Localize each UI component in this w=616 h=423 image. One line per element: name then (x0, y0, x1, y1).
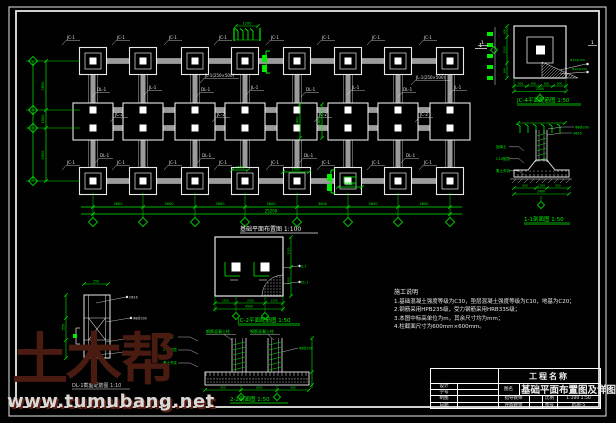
dim-text: 3600 (164, 202, 174, 206)
dim-text: 3600 (113, 202, 123, 206)
dim-text: 600 (518, 82, 524, 86)
column-mark (192, 178, 199, 185)
callout-label: JC-2 (114, 112, 123, 117)
callout-label: JC-1 (371, 35, 380, 40)
column-mark (447, 125, 454, 132)
material-label: 钢筋混凝土柱 (250, 328, 274, 334)
callout-label: DL-1 (100, 153, 110, 158)
beam-callout-label: JL-1(250×500) (415, 75, 446, 80)
dim-text: 600 (555, 184, 561, 188)
dim-text: 1200 (287, 247, 291, 254)
rebar-hatch (269, 362, 281, 365)
section-marker: 1 (591, 40, 594, 46)
leader-dot (126, 296, 128, 298)
ground-hatch (518, 179, 522, 183)
dim-text: 3600 (266, 202, 276, 206)
rebar-hatch (233, 362, 245, 365)
callout-label: DL-1 (306, 87, 316, 92)
rebar-mark (487, 54, 493, 58)
rebar-label: Φ12@150 (572, 67, 587, 71)
axis-diamond (538, 202, 545, 209)
rebar-mark (327, 174, 332, 181)
footing-hatch (206, 379, 309, 385)
dim-text: 600 (557, 82, 563, 86)
dim-text: 1200 (222, 299, 229, 303)
dim-text: 3600 (41, 81, 45, 91)
callout-leader (95, 159, 99, 164)
column-mark (447, 58, 454, 65)
callout-leader (367, 41, 371, 46)
dim-text: 3600 (215, 202, 225, 206)
dim-text: 600 (544, 82, 550, 86)
note-item: 2.钢筋采用HPB235级，受力钢筋采用HRB335级； (394, 306, 584, 314)
drawing-name: 基础平面布置图及详图 (521, 382, 616, 395)
callout-leader (401, 159, 405, 164)
footing-hatch (206, 373, 309, 379)
dim-text: 1800 (255, 386, 262, 390)
callout-leader (214, 41, 218, 46)
callout-label: JC-2 (216, 112, 225, 117)
detail-title: 1-1剖面图 1:50 (524, 215, 564, 223)
column-mark (242, 58, 249, 65)
callout-leader (282, 348, 298, 352)
callout-leader (411, 81, 415, 86)
dim-text: 4500 (245, 305, 253, 309)
ground-hatch (536, 179, 540, 183)
jc2-column-mark (261, 263, 270, 272)
column-mark (345, 58, 352, 65)
callout-label: JL-1 (250, 85, 259, 90)
callout-leader (200, 79, 204, 84)
callout-label: JC-1 (66, 35, 75, 40)
column-mark (395, 58, 402, 65)
sheet-number-label: 图号 (542, 402, 557, 409)
construction-notes: 施工说明 1.基础混凝土强度等级为C30，垫层混凝土强度等级为C10，地基为C2… (394, 288, 584, 331)
jc4-column-mark (536, 46, 545, 55)
rebar-hook (250, 29, 253, 32)
title-block-line (529, 395, 530, 408)
callout-leader (268, 335, 274, 341)
callout-label: JL-1 (351, 85, 360, 90)
leader-dot (586, 63, 589, 66)
ground-hatch (524, 179, 528, 183)
cad-drawing-sheet: 3600150039003600360036003600360036003600… (0, 0, 616, 423)
callout-label: DL-1 (406, 153, 416, 158)
watermark-url: www.tumubang.net (7, 391, 215, 412)
rebar-hook (549, 124, 552, 126)
column-mark (140, 178, 147, 185)
dim-text: 1200 (270, 299, 277, 303)
callout-label: JC-1 (116, 160, 125, 165)
dim-text: 3600 (318, 202, 328, 206)
callout-label: JC-2 (419, 112, 428, 117)
rebar-label: Φ8@200 (299, 347, 313, 351)
dim-text: 900 (290, 386, 296, 390)
dim-text: 1500 (235, 166, 245, 170)
rebar-hatch (269, 342, 281, 345)
rebar-hatch (537, 143, 546, 146)
dim-text: 2100 (247, 299, 254, 303)
rebar-label: JL-1 (300, 265, 307, 269)
dim-text: 25200 (265, 209, 278, 214)
dim-text: 3600 (419, 202, 429, 206)
rebar-mark (487, 76, 493, 80)
rebar-hatch (233, 347, 245, 350)
reviewer-label: 评阅教师 (498, 402, 529, 409)
ground-hatch (548, 179, 552, 183)
dim-text: 600 (531, 82, 537, 86)
callout-leader (367, 166, 371, 171)
dim-text: 250 (93, 280, 99, 284)
callout-label: JC-1 (321, 35, 330, 40)
column-mark (345, 125, 352, 132)
rebar-hook (525, 124, 528, 126)
callout-leader (519, 159, 524, 163)
column-mark (294, 178, 301, 185)
axis-diamond (446, 218, 455, 227)
rebar-mark (487, 32, 493, 36)
ground-hatch (566, 179, 570, 183)
sheet-number-value: 结施-5 (557, 402, 600, 409)
callout-label: JC-2 (318, 112, 327, 117)
column-mark (90, 125, 97, 132)
callout-leader (190, 337, 198, 341)
rebar-hatch (233, 367, 245, 370)
note-item: 3.本图中标高单位为m，其余尺寸均为mm； (394, 315, 584, 323)
dim-text: 1500 (41, 114, 45, 124)
callout-label: JC-1 (218, 35, 227, 40)
rebar-hatch (233, 342, 245, 345)
callout-label: JC-1 (168, 160, 177, 165)
rebar-hatch (269, 367, 281, 370)
callout-label: DL-1 (304, 153, 314, 158)
callout-leader (96, 297, 126, 303)
axis-diamond (191, 218, 200, 227)
callout-leader (519, 147, 524, 151)
column-mark (447, 107, 454, 114)
column-mark (294, 107, 301, 114)
callout-label: JC-1 (270, 35, 279, 40)
dim-text: 2400 (296, 116, 300, 126)
callout-label: JC-1 (116, 35, 125, 40)
callout-label: JL-1 (453, 85, 462, 90)
column-mark (192, 107, 199, 114)
axis-diamond (139, 218, 148, 227)
detail-title: JC-4平面配筋图 1:50 (516, 96, 570, 104)
callout-leader (317, 41, 321, 46)
rebar-label: Φ8@200 (575, 126, 589, 130)
rebar-hook (517, 124, 520, 126)
callout-label: DL-1 (202, 153, 212, 158)
dim-text: 1200 (503, 46, 507, 53)
column-mark (90, 178, 97, 185)
leader-dot (586, 71, 589, 74)
callout-leader (112, 41, 116, 46)
watermark-brand: 土木帮 (12, 333, 174, 389)
rebar-hook (235, 29, 238, 32)
rebar-label: 2Φ16 (129, 296, 138, 300)
rebar-hatch (537, 158, 546, 161)
rebar-hatch (537, 138, 546, 141)
axis-diamond (491, 47, 498, 54)
dim-text: 1200 (243, 22, 252, 26)
rebar-mark (262, 65, 267, 72)
callout-label: DL-1 (97, 87, 107, 92)
title-block-line (457, 383, 458, 408)
column-mark (447, 178, 454, 185)
rebar-hatch (269, 357, 281, 360)
callout-leader (164, 166, 168, 171)
dim-text: 3900 (41, 150, 45, 160)
detail-title: JC-2平面配筋图 1:50 (237, 316, 291, 324)
beam-callout-label: JL-1(250×500) (204, 73, 235, 78)
drawing-name-label: 图名 (498, 383, 519, 395)
column-mark (242, 178, 249, 185)
column-mark (395, 125, 402, 132)
column-mark (395, 178, 402, 185)
axis-diamond (394, 218, 403, 227)
material-label: 钢筋混凝土柱 (206, 328, 230, 334)
rebar-hook (557, 124, 560, 126)
rebar-mark (487, 65, 493, 69)
callout-leader (224, 335, 232, 341)
leader-dot (130, 317, 132, 319)
column-mark (192, 125, 199, 132)
rebar-hatch (537, 148, 546, 151)
callout-label: JC-1 (371, 160, 380, 165)
footing-hatch (515, 171, 569, 177)
column-mark (140, 125, 147, 132)
rebar-hatch (269, 352, 281, 355)
ground-hatch (542, 179, 546, 183)
dim-text: 900 (220, 386, 226, 390)
dim-text: 2400 (537, 190, 545, 194)
rebar-hatch (233, 352, 245, 355)
callout-label: JC-1 (423, 35, 432, 40)
dim-text: 600 (522, 184, 528, 188)
callout-label: JC-1 (168, 35, 177, 40)
rebar-hook (541, 124, 544, 126)
callout-leader (419, 41, 423, 46)
rebar-mark (327, 184, 332, 191)
rebar-hatch (537, 133, 546, 136)
column-mark (242, 125, 249, 132)
callout-leader (266, 41, 270, 46)
axis-diamond (274, 394, 281, 401)
material-label: 回填土 (496, 144, 507, 149)
notes-title: 施工说明 (394, 288, 584, 297)
rebar-hook (533, 124, 536, 126)
callout-leader (164, 41, 168, 46)
callout-label: JC-1 (270, 160, 279, 165)
column-mark (140, 107, 147, 114)
dim-text: 3600 (368, 202, 378, 206)
callout-leader (419, 166, 423, 171)
callout-leader (547, 133, 562, 135)
title-block: 工程名称 图名 基础平面布置图及详图 设计 学号 制图 日期 指导教师 评阅教师… (430, 368, 601, 409)
callout-label: JC-1 (423, 160, 432, 165)
callout-leader (190, 363, 198, 367)
callout-label: JC-1 (66, 160, 75, 165)
rebar-label: Φ8@200 (133, 317, 147, 321)
material-label: C10垫层 (496, 156, 510, 161)
date-label: 日期 (431, 402, 457, 409)
column-mark (294, 58, 301, 65)
note-item: 1.基础混凝土强度等级为C30，垫层混凝土强度等级为C10，地基为C20； (394, 298, 584, 306)
callout-leader (283, 282, 298, 284)
dim-text: 600 (503, 68, 507, 74)
column-mark (90, 58, 97, 65)
dim-text: 600 (503, 29, 507, 35)
callout-leader (190, 350, 198, 354)
dim-text: 1200 (287, 277, 291, 284)
callout-leader (62, 41, 66, 46)
axis-diamond (89, 218, 98, 227)
callout-label: JC-1 (321, 160, 330, 165)
ground-hatch (560, 179, 564, 183)
column-mark (140, 58, 147, 65)
callout-label: DL-1 (201, 87, 211, 92)
rebar-label: Φ12@150 (570, 58, 585, 62)
callout-leader (62, 166, 66, 171)
detail-title: 2-2剖面图 1:50 (230, 395, 270, 403)
dim-text: 2400 (536, 87, 544, 91)
rebar-mark (487, 43, 493, 47)
title-block-line (519, 383, 520, 395)
rebar-hatch (269, 347, 281, 350)
rebar-hatch (537, 153, 546, 156)
callout-label: JC-1 (218, 160, 227, 165)
rebar-hatch (233, 357, 245, 360)
column-mark (90, 107, 97, 114)
material-label: 素土夯实 (496, 168, 510, 173)
callout-label: DL-1 (403, 87, 413, 92)
ground-hatch (554, 179, 558, 183)
jc2-column-mark (232, 263, 241, 272)
note-item: 4.柱截面尺寸为600mm×600mm。 (394, 323, 584, 331)
column-mark (345, 107, 352, 114)
rebar-label: 4Φ16 (573, 132, 582, 136)
ground-hatch (512, 179, 516, 183)
axis-diamond (344, 218, 353, 227)
callout-label: JL-1 (148, 85, 157, 90)
rebar-hook (240, 29, 243, 32)
rebar-label: DL-1 (301, 281, 308, 285)
column-mark (242, 107, 249, 114)
rebar-mark (262, 55, 267, 62)
callout-leader (299, 159, 303, 164)
ground-hatch (530, 179, 534, 183)
callout-leader (266, 166, 270, 171)
callout-leader (317, 166, 321, 171)
callout-leader (112, 166, 116, 171)
column-mark (395, 107, 402, 114)
rebar-hook (245, 29, 248, 32)
section-marker: 1 (481, 40, 484, 46)
callout-leader (214, 166, 218, 171)
plan-title: 基础平面布置图 1:100 (240, 225, 301, 233)
dim-text: 1500 (291, 168, 301, 172)
dim-text: 1200 (538, 184, 545, 188)
dim-text: 2400 (318, 116, 322, 126)
column-mark (192, 58, 199, 65)
callout-leader (197, 159, 201, 164)
